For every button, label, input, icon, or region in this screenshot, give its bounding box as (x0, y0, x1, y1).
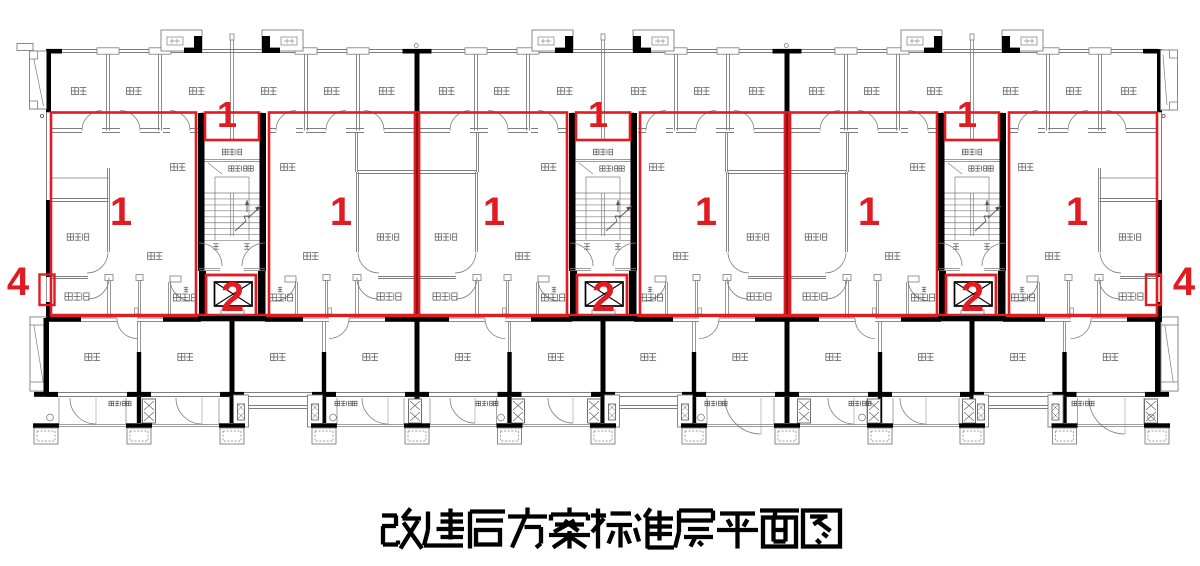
svg-text:1: 1 (483, 190, 505, 234)
svg-text:1: 1 (110, 190, 132, 234)
svg-text:1: 1 (1066, 190, 1088, 234)
svg-text:1: 1 (858, 190, 880, 234)
svg-text:2: 2 (961, 273, 984, 320)
svg-text:1: 1 (957, 94, 977, 135)
svg-text:1: 1 (695, 190, 717, 234)
svg-text:2: 2 (592, 273, 615, 320)
svg-text:1: 1 (217, 94, 237, 135)
svg-text:4: 4 (7, 260, 30, 304)
svg-text:1: 1 (588, 94, 608, 135)
svg-text:2: 2 (221, 273, 244, 320)
svg-text:4: 4 (1173, 260, 1196, 304)
svg-text:1: 1 (330, 190, 352, 234)
